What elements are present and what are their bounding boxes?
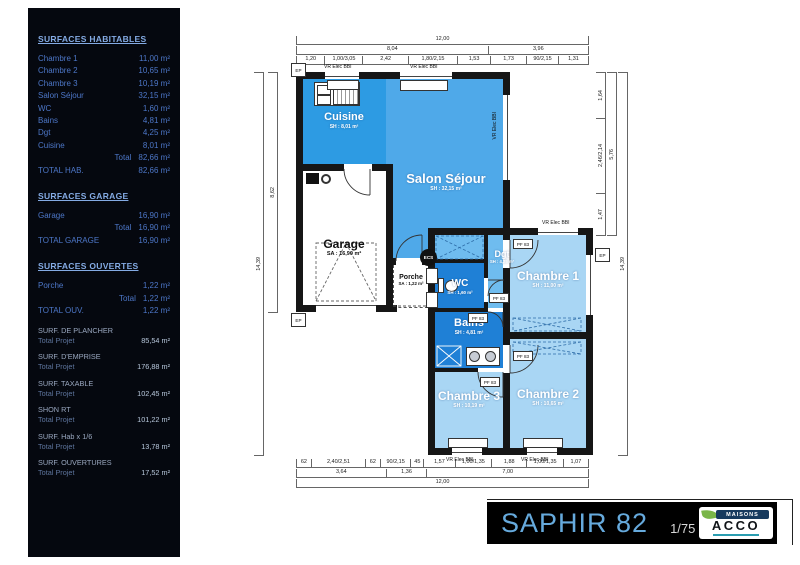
porch-door-tag-upper [426, 268, 438, 284]
label-salon: Salon SéjourSH : 32,15 m² [394, 172, 498, 192]
dimension-segment: 2,42 [363, 56, 409, 65]
ep-tag-right: EP [595, 248, 610, 262]
dimension-segment: 1,36 [387, 469, 428, 478]
label-porche: PorcheSA : 1,22 m² [391, 274, 431, 287]
dimension-segment: 90/2,15 [381, 459, 412, 468]
drawing-scale: 1/75 [670, 521, 695, 536]
maisons-acco-logo: MAISONS ACCO [699, 507, 773, 539]
surface-row: Dgt4,25 m² [36, 127, 172, 139]
dimension-segment: 12,00 [297, 36, 589, 45]
label-garage: GarageSA : 16,90 m² [304, 238, 384, 257]
section-title-ouvertes: SURFACES OUVERTES [38, 261, 172, 271]
vr-label-cuisine: VR Elec BBI [324, 64, 352, 70]
label-chambre2: Chambre 2SH : 10,65 m² [510, 388, 586, 407]
dimension-segment: 1,73 [491, 56, 527, 65]
surface-row: WC1,60 m² [36, 103, 172, 115]
project-surface-header: SHON RT [38, 405, 172, 414]
dimension-segment: 7,00 [427, 469, 589, 478]
label-dgt: DgtSH : 4,25 m² [480, 250, 524, 265]
window-chambre2 [527, 448, 557, 455]
dimension-segment: 62 [366, 459, 381, 468]
dim-top-overall: 12,00 [296, 36, 589, 45]
project-surface-header: SURF. OUVERTURES [38, 458, 172, 467]
window-tag-chambre2 [523, 438, 563, 448]
wall-garage-salon [386, 164, 393, 312]
dimension-segment: 5,76 [607, 73, 617, 236]
door-gap-ch2 [503, 345, 510, 373]
surface-row: Total82,66 m² [36, 152, 172, 164]
room-salon [386, 79, 503, 228]
dimension-segment: 1,47 [596, 194, 606, 236]
window-tag-cuisine [327, 80, 359, 90]
vr-label-salon-top: VR Elec BBI [410, 64, 438, 70]
titleblock-top-rule [487, 499, 793, 500]
dimension-segment: 62 [297, 459, 312, 468]
dim-right-detail: 1,642,46/2,141,47 [596, 72, 606, 236]
vr-label-salon-right: VR Elec BBI [492, 112, 498, 140]
wall-ch1-ch2 [503, 332, 593, 339]
garage-door-opening [316, 305, 376, 312]
project-surface-header: SURF. Hab x 1/6 [38, 432, 172, 441]
door-gap-wc [484, 278, 488, 302]
dimension-segment: 1,07 [564, 459, 589, 468]
dimension-segment: 14,39 [618, 73, 628, 456]
section-title-garage: SURFACES GARAGE [38, 191, 172, 201]
dim-bottom-blocks: 3,641,367,00 [296, 469, 589, 478]
door-gap-ch3 [478, 368, 503, 372]
title-block: SAPHIR 82 1/75 MAISONS ACCO [487, 502, 777, 544]
project-surface-row: Total Projet17,52 m² [36, 468, 172, 478]
dimension-segment: 12,00 [297, 479, 589, 488]
project-surface-row: Total Projet176,88 m² [36, 362, 172, 372]
garage-drain [321, 174, 331, 184]
wall-closet-wc [435, 259, 484, 263]
surface-row: Garage16,90 m² [36, 210, 172, 222]
surface-row: Porche1,22 m² [36, 280, 172, 292]
door-gap-garage [344, 164, 372, 171]
section-title-habitables: SURFACES HABITABLES [38, 34, 172, 44]
dim-right-subtotal: 5,76 [607, 72, 617, 236]
washbasin-right [485, 351, 496, 362]
ep-tag-top-left: EP [291, 63, 306, 77]
door-gap-entry [396, 258, 422, 265]
label-wc: WCSH : 1,60 m² [437, 279, 483, 295]
logo-tagline-rule [713, 534, 759, 537]
dimension-segment: 3,64 [297, 469, 387, 478]
dimension-segment: 1,31 [559, 56, 589, 65]
vr-label-chambre2: VR Elec BBI [521, 457, 549, 463]
dim-top-blocks: 8,043,96 [296, 46, 589, 55]
washbasin-left [469, 351, 480, 362]
project-surface-row: Total Projet102,45 m² [36, 389, 172, 399]
dimension-segment: 8,62 [268, 73, 278, 313]
surface-row: Total16,90 m² [36, 222, 172, 234]
dim-right-overall: 14,39 [618, 72, 628, 456]
surface-row: Cuisine8,01 m² [36, 140, 172, 152]
dimension-segment: 3,96 [489, 46, 589, 55]
vr-label-chambre3: VR Elec BBI [446, 457, 474, 463]
project-surface-row: Total Projet85,54 m² [36, 336, 172, 346]
window-wing-right [586, 255, 593, 315]
surface-table-garage: Garage16,90 m²Total16,90 m²TOTAL GARAGE1… [36, 210, 172, 247]
window-tag-salon [400, 80, 448, 91]
dim-bottom-overall: 12,00 [296, 479, 589, 488]
porch-door-tag-lower [426, 292, 438, 308]
surface-table-habitables: Chambre 111,00 m²Chambre 210,65 m²Chambr… [36, 53, 172, 177]
surface-row: TOTAL GARAGE16,90 m² [36, 235, 172, 247]
garage-boiler [306, 173, 319, 184]
dim-left-inner: 8,62 [268, 72, 278, 313]
window-cuisine [325, 72, 359, 79]
water-heater-ecs: ECS [420, 249, 437, 266]
pf-tag-bains: PF 83 [468, 313, 488, 323]
project-surface-header: SURF. D'EMPRISE [38, 352, 172, 361]
project-surface-header: SURF. TAXABLE [38, 379, 172, 388]
model-title: SAPHIR 82 [501, 508, 648, 539]
pf-tag-chambre2: PF 83 [513, 351, 533, 361]
door-gap-bains [488, 308, 503, 312]
bathroom-counter [466, 347, 500, 366]
surface-row: Chambre 210,65 m² [36, 65, 172, 77]
dimension-segment: 14,39 [254, 73, 264, 456]
label-cuisine: CuisineSH : 8,01 m² [304, 112, 384, 130]
pf-tag-chambre1: PF 83 [513, 239, 533, 249]
project-surface-header: SURF. DE PLANCHER [38, 326, 172, 335]
label-chambre1: Chambre 1SH : 11,00 m² [510, 270, 586, 289]
window-salon-right [503, 95, 510, 180]
logo-wordmark: ACCO [699, 518, 773, 533]
surface-table-ouvertes: Porche1,22 m²Total1,22 m²TOTAL OUV.1,22 … [36, 280, 172, 317]
surface-row: Chambre 111,00 m² [36, 53, 172, 65]
surface-row: Chambre 310,19 m² [36, 78, 172, 90]
plan-sheet: SURFACES HABITABLES Chambre 111,00 m²Cha… [0, 0, 800, 565]
project-surface-row: Total Projet13,78 m² [36, 442, 172, 452]
surface-row: TOTAL OUV.1,22 m² [36, 305, 172, 317]
surface-row: Total1,22 m² [36, 293, 172, 305]
dimension-segment: 2,46/2,14 [596, 119, 606, 194]
surface-row: TOTAL HAB.82,66 m² [36, 165, 172, 177]
dim-left-outer: 14,39 [254, 72, 264, 456]
project-surfaces-block: SURF. DE PLANCHERTotal Projet85,54 m²SUR… [36, 326, 172, 478]
dimension-segment: 8,04 [297, 46, 489, 55]
vr-label-chambre1: VR Elec BBI [542, 220, 570, 226]
wall-left [296, 72, 303, 312]
window-chambre3 [452, 448, 482, 455]
pf-tag-chambre3: PF 83 [480, 377, 500, 387]
label-chambre3: Chambre 3SH : 10,19 m² [435, 390, 503, 409]
window-chambre1 [538, 228, 578, 235]
ep-tag-bottom-left: EP [291, 313, 306, 327]
surface-row: Bains4,81 m² [36, 115, 172, 127]
dimension-segment: 90/2,15 [527, 56, 559, 65]
pf-tag-wc: PF 83 [489, 293, 509, 303]
dimension-segment: 1,64 [596, 73, 606, 119]
project-surface-row: Total Projet101,22 m² [36, 415, 172, 425]
surface-row: Salon Séjour32,15 m² [36, 90, 172, 102]
surfaces-sidebar: SURFACES HABITABLES Chambre 111,00 m²Cha… [28, 8, 180, 557]
window-tag-chambre3 [448, 438, 488, 448]
sheet-right-rule [792, 499, 793, 545]
dimension-segment: 2,40/2,51 [312, 459, 366, 468]
window-salon-top [400, 72, 452, 79]
dimension-segment: 1,53 [458, 56, 491, 65]
